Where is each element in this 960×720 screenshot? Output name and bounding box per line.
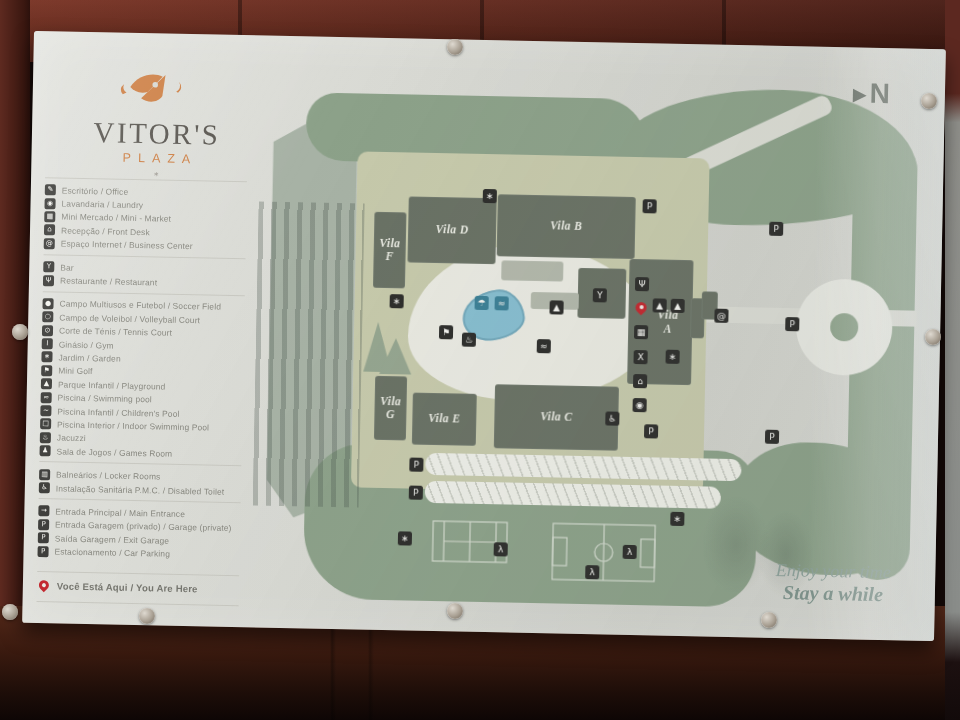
brand-subtitle: PLAZA [57, 149, 255, 167]
you-are-here-pin [634, 301, 648, 315]
legend-item-disabled-toilet: ♿Instalação Sanitária P.M.C. / Disabled … [39, 481, 241, 498]
legend-group: ▥Balneários / Locker Rooms♿Instalação Sa… [39, 462, 242, 503]
parking-icon-5: P [409, 486, 423, 500]
garden-icon-4: ∗ [398, 531, 412, 545]
brand-name: VITOR'S [58, 115, 257, 152]
garage-entrance-icon: P [38, 519, 49, 530]
legend-label: Escritório / Office [62, 185, 129, 196]
mounting-screw [139, 608, 155, 624]
tennis-court-icon: ⊙ [42, 325, 53, 336]
legend-group: ✎Escritório / Office◉Lavandaria / Laundr… [44, 177, 248, 258]
legend-label: Jacuzzi [57, 433, 86, 444]
mounting-screw [921, 93, 937, 109]
garden-icon-2: ∗ [665, 350, 679, 364]
playground-icon: ▲ [549, 300, 563, 314]
internet-icon: @ [44, 238, 55, 249]
building-vila-c-label: Vila C [494, 384, 619, 450]
car-parking-icon: P [37, 546, 48, 557]
legend-label: Jardim / Garden [58, 352, 120, 363]
garden-icon-5: ∗ [670, 512, 684, 526]
legend-label: Entrada Principal / Main Entrance [55, 506, 185, 519]
front-desk-icon: ⌂ [633, 374, 647, 388]
mounting-screw [447, 603, 463, 619]
mounting-screw [925, 329, 941, 345]
pool-icon: ≈ [41, 392, 52, 403]
building-vila-f: VilaF [373, 212, 407, 289]
legend-label: Corte de Ténis / Tennis Court [59, 326, 172, 338]
garden-icon-1: ∗ [483, 189, 497, 203]
building-vila-b-label: Vila B [497, 194, 636, 259]
laundry-icon: ◉ [633, 398, 647, 412]
legend-label: Sala de Jogos / Games Room [57, 446, 173, 458]
playground-icon: ▲ [41, 378, 52, 389]
legend-label: Mini Mercado / Mini - Market [61, 212, 171, 224]
legend-item-car-parking: PEstacionamento / Car Parking [37, 544, 239, 561]
legend-group: ●Campo Multiusos e Futebol / Soccer Fiel… [39, 291, 244, 466]
mounting-screw [761, 612, 777, 628]
mini-market-icon: ▦ [634, 325, 648, 339]
legend-label: Piscina Infantil / Children's Pool [57, 406, 179, 418]
brand-logo: VITOR'S PLAZA ∗ [57, 65, 257, 179]
legend-label: Balneários / Locker Rooms [56, 470, 160, 482]
restaurant-icon: Ψ [43, 275, 54, 286]
swimmer-icon-1: ≈ [495, 296, 509, 310]
wall-right-edge [945, 0, 960, 720]
legend-label: Saída Garagem / Exit Garage [55, 533, 170, 545]
tagline-line2: Stay a while [735, 580, 931, 607]
building-vila-e: Vila E [412, 393, 477, 446]
map-sign-panel: VilaFVila DVila BVilaAVila CVila EVilaG … [22, 31, 946, 641]
fountain-icon: ♨ [462, 333, 476, 347]
legend-item-restaurant: ΨRestaurante / Restaurant [43, 273, 245, 290]
garage-exit-icon: P [38, 532, 49, 543]
bar-icon: Y [593, 288, 607, 302]
legend-label: Piscina / Swimming pool [58, 393, 152, 405]
legend-label: Mini Golf [58, 366, 93, 377]
swimmer-icon-2: ≈ [537, 339, 551, 353]
building-vila-d-label: Vila D [407, 196, 496, 264]
mini-golf-icon: ⚑ [439, 325, 453, 339]
jacuzzi-icon: ♨ [40, 432, 51, 443]
parking-icon-2: P [785, 317, 799, 331]
tennis-player-icon: λ [494, 542, 508, 556]
volleyball-court-icon: ○ [42, 311, 53, 322]
slide-icon-1: ▲ [653, 298, 667, 312]
mini-golf-icon: ⚑ [41, 365, 52, 376]
tagline: Enjoy your time Stay a while [735, 559, 932, 607]
building-vila-c: Vila C [494, 384, 619, 450]
legend-label: Campo de Voleibol / Volleyball Court [59, 312, 200, 325]
mounting-screw [447, 39, 463, 55]
legend-label: Restaurante / Restaurant [60, 276, 157, 288]
building-vila-f-label: VilaF [373, 212, 407, 289]
legend-label: Piscina Interior / Indoor Swimming Pool [57, 419, 209, 432]
building-vila-e-label: Vila E [412, 393, 477, 446]
slide-icon-2: ▲ [671, 299, 685, 313]
mounting-screw [2, 604, 18, 620]
mini-market-icon: ▦ [44, 211, 55, 222]
garage-exit-icon: P [644, 424, 658, 438]
parking-icon-1: P [769, 222, 783, 236]
you-are-here-label: Você Está Aqui / You Are Here [57, 581, 198, 595]
legend-label: Bar [60, 262, 74, 272]
locker-rooms-icon: ▥ [39, 469, 50, 480]
north-arrow-icon: ▶ [853, 83, 867, 104]
disabled-access-icon: ♿ [605, 411, 619, 425]
building-vila-g: VilaG [374, 376, 407, 441]
parking-icon-3: P [765, 430, 779, 444]
disabled-toilet-icon: ♿ [39, 482, 50, 493]
soccer-player-icon: λ [623, 545, 637, 559]
legend-item-internet: @Espaço Internet / Business Center [44, 237, 246, 254]
garage-entrance-icon: P [642, 199, 656, 213]
photo-scene: VilaFVila DVila BVilaAVila CVila EVilaG … [0, 0, 960, 720]
legend-label: Ginásio / Gym [59, 339, 114, 350]
volleyball-player-icon: λ [585, 565, 599, 579]
legend-group: YBarΨRestaurante / Restaurant [43, 254, 246, 295]
legend-label: Estacionamento / Car Parking [54, 546, 170, 558]
compass: ▶ N [853, 77, 891, 110]
front-desk-icon: ⌂ [44, 225, 55, 236]
legend-label: Recepção / Front Desk [61, 225, 150, 237]
children-pool-icon: ∼ [40, 405, 51, 416]
main-entrance-icon: → [38, 505, 49, 516]
bar-icon: Y [43, 261, 54, 272]
office-icon: ✎ [45, 184, 56, 195]
soccer-field-icon: ● [42, 298, 53, 309]
legend: ✎Escritório / Office◉Lavandaria / Laundr… [37, 177, 247, 606]
you-are-here-pin-icon [37, 578, 51, 592]
legend-item-games-room: ♟Sala de Jogos / Games Room [39, 444, 241, 461]
legend-label: Lavandaria / Laundry [61, 199, 143, 211]
gym-icon: I [42, 338, 53, 349]
legend-label: Instalação Sanitária P.M.C. / Disabled T… [56, 483, 225, 496]
garden-icon: ∗ [41, 352, 52, 363]
building-vila-d: Vila D [407, 196, 496, 264]
bird-logo-icon [118, 67, 197, 115]
restaurant-icon: Ψ [635, 277, 649, 291]
building-spa [501, 260, 563, 281]
legend-group: →Entrada Principal / Main EntrancePEntra… [37, 498, 240, 566]
legend-label: Espaço Internet / Business Center [61, 239, 193, 252]
you-are-here-row: Você Está Aqui / You Are Here [37, 571, 240, 606]
sun-lounger-icon: ☂ [475, 296, 489, 310]
gym-icon: X [633, 350, 647, 364]
garden-icon-3: ∗ [390, 294, 404, 308]
compass-north-label: N [869, 78, 890, 110]
mounting-screw [12, 324, 28, 340]
laundry-icon: ◉ [44, 198, 55, 209]
building-vila-g-label: VilaG [374, 376, 407, 441]
soccer-field-outline [551, 522, 656, 582]
legend-label: Parque Infantil / Playground [58, 379, 166, 391]
indoor-pool-icon: □ [40, 419, 51, 430]
legend-groups: ✎Escritório / Office◉Lavandaria / Laundr… [37, 177, 247, 566]
building-vila-b: Vila B [497, 194, 636, 259]
parking-icon-4: P [409, 458, 423, 472]
internet-icon: @ [714, 309, 728, 323]
games-room-icon: ♟ [39, 445, 50, 456]
